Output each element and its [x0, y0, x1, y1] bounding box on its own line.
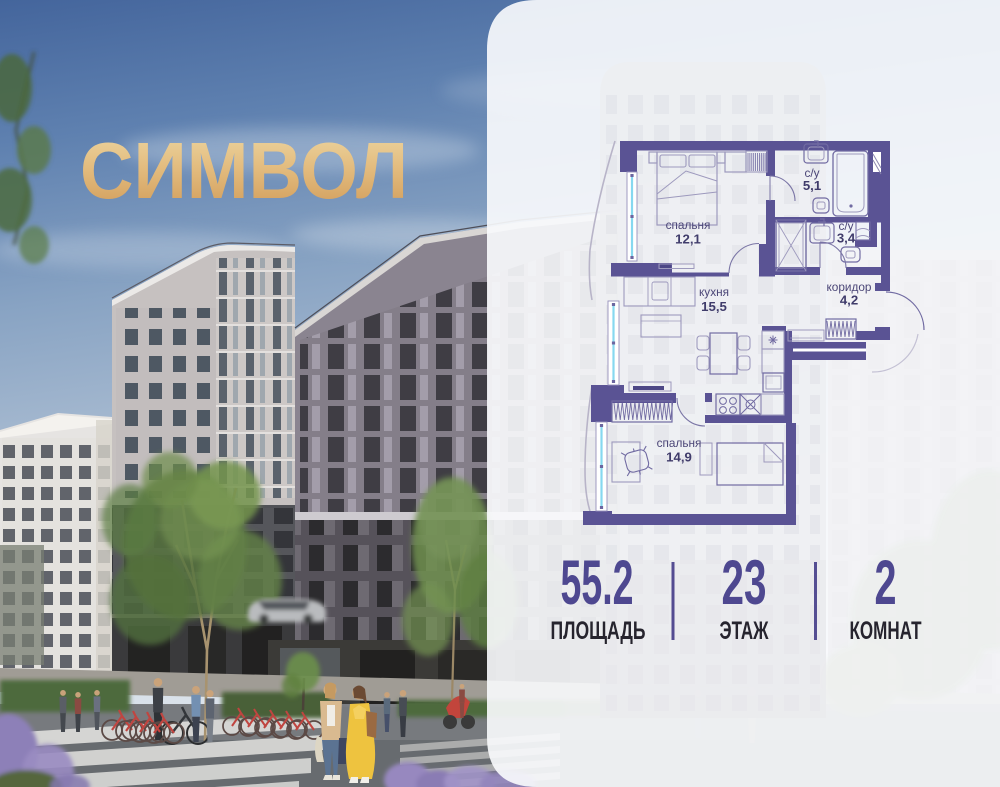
svg-text:4,2: 4,2: [840, 293, 858, 308]
svg-text:СИМВОЛ: СИМВОЛ: [80, 126, 408, 215]
svg-text:ПЛОЩАДЬ: ПЛОЩАДЬ: [551, 617, 646, 645]
svg-text:спальня: спальня: [657, 436, 702, 450]
svg-text:14,9: 14,9: [666, 450, 692, 465]
svg-text:2: 2: [875, 548, 897, 618]
svg-text:3,4: 3,4: [837, 231, 856, 246]
svg-text:спальня: спальня: [666, 218, 711, 232]
svg-text:23: 23: [722, 548, 767, 618]
svg-text:КОМНАТ: КОМНАТ: [850, 617, 922, 645]
svg-text:ЭТАЖ: ЭТАЖ: [720, 617, 769, 645]
svg-text:12,1: 12,1: [675, 232, 701, 247]
svg-text:кухня: кухня: [699, 285, 729, 299]
svg-text:5,1: 5,1: [803, 178, 821, 193]
svg-text:55.2: 55.2: [561, 548, 634, 618]
svg-text:15,5: 15,5: [701, 299, 727, 314]
